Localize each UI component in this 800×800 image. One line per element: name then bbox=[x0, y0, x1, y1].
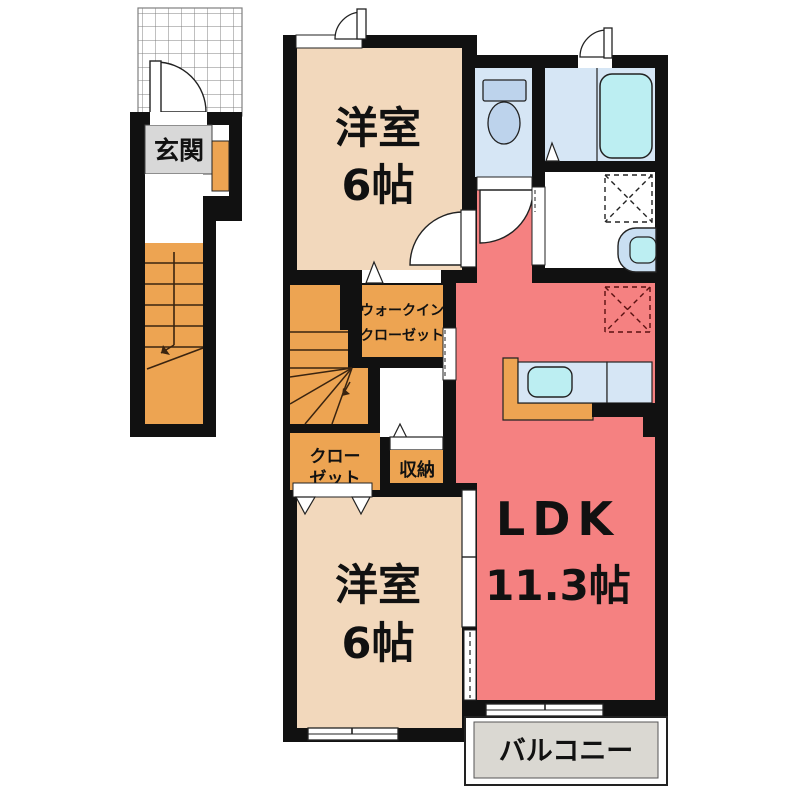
bathtub-icon bbox=[600, 74, 652, 158]
bedroom-bottom-floor bbox=[297, 497, 462, 728]
wic-label-2: クローゼット bbox=[360, 327, 444, 344]
bedroom-bottom-label: 洋室 bbox=[335, 561, 421, 611]
bath-window-swing bbox=[580, 30, 607, 57]
storage-label: 収納 bbox=[399, 459, 435, 481]
kitchen-sink-icon bbox=[528, 367, 572, 397]
floor-plan: 玄関 洋室 6帖 洋室 6帖 bbox=[0, 0, 800, 800]
bath-window-leaf bbox=[604, 28, 612, 58]
sink-icon bbox=[618, 228, 656, 272]
closet-label-1: クロー bbox=[310, 447, 361, 467]
bedroom-bottom-window bbox=[308, 728, 398, 740]
stair-hall bbox=[145, 174, 203, 243]
storage-door bbox=[390, 437, 443, 450]
toilet-door-gap bbox=[477, 177, 532, 190]
ldk-label: LDK bbox=[496, 492, 620, 546]
bedroom-ldk-slide-door bbox=[462, 490, 476, 700]
bedroom-bottom-size: 6帖 bbox=[342, 619, 415, 669]
closet-door bbox=[293, 483, 372, 497]
balcony-sliding-window bbox=[486, 704, 603, 716]
wall-jog bbox=[643, 417, 657, 437]
entrance-door-gap bbox=[150, 112, 207, 125]
washroom-slide-door bbox=[532, 187, 545, 265]
entrance-door-leaf bbox=[150, 61, 161, 113]
ldk-size: 11.3帖 bbox=[485, 561, 631, 610]
bedroom-top-size: 6帖 bbox=[342, 161, 415, 211]
balcony-label: バルコニー bbox=[499, 736, 633, 767]
bedroom-top-label: 洋室 bbox=[335, 104, 421, 154]
right-outer-wall bbox=[655, 55, 668, 717]
window-leaf bbox=[357, 9, 366, 39]
genkan-label: 玄関 bbox=[154, 136, 204, 165]
kitchen-unit-right bbox=[607, 362, 652, 403]
bedroom-top-door-gap bbox=[461, 210, 476, 267]
kitchen bbox=[503, 358, 655, 420]
entrance-wing: 玄関 bbox=[130, 8, 242, 437]
kitchen-back-wall bbox=[592, 403, 655, 417]
balcony: バルコニー bbox=[465, 704, 667, 785]
hallway bbox=[380, 368, 443, 437]
genkan-step bbox=[212, 141, 229, 191]
wic-label-1: ウォークイン bbox=[360, 303, 444, 319]
wic-room bbox=[362, 285, 443, 357]
